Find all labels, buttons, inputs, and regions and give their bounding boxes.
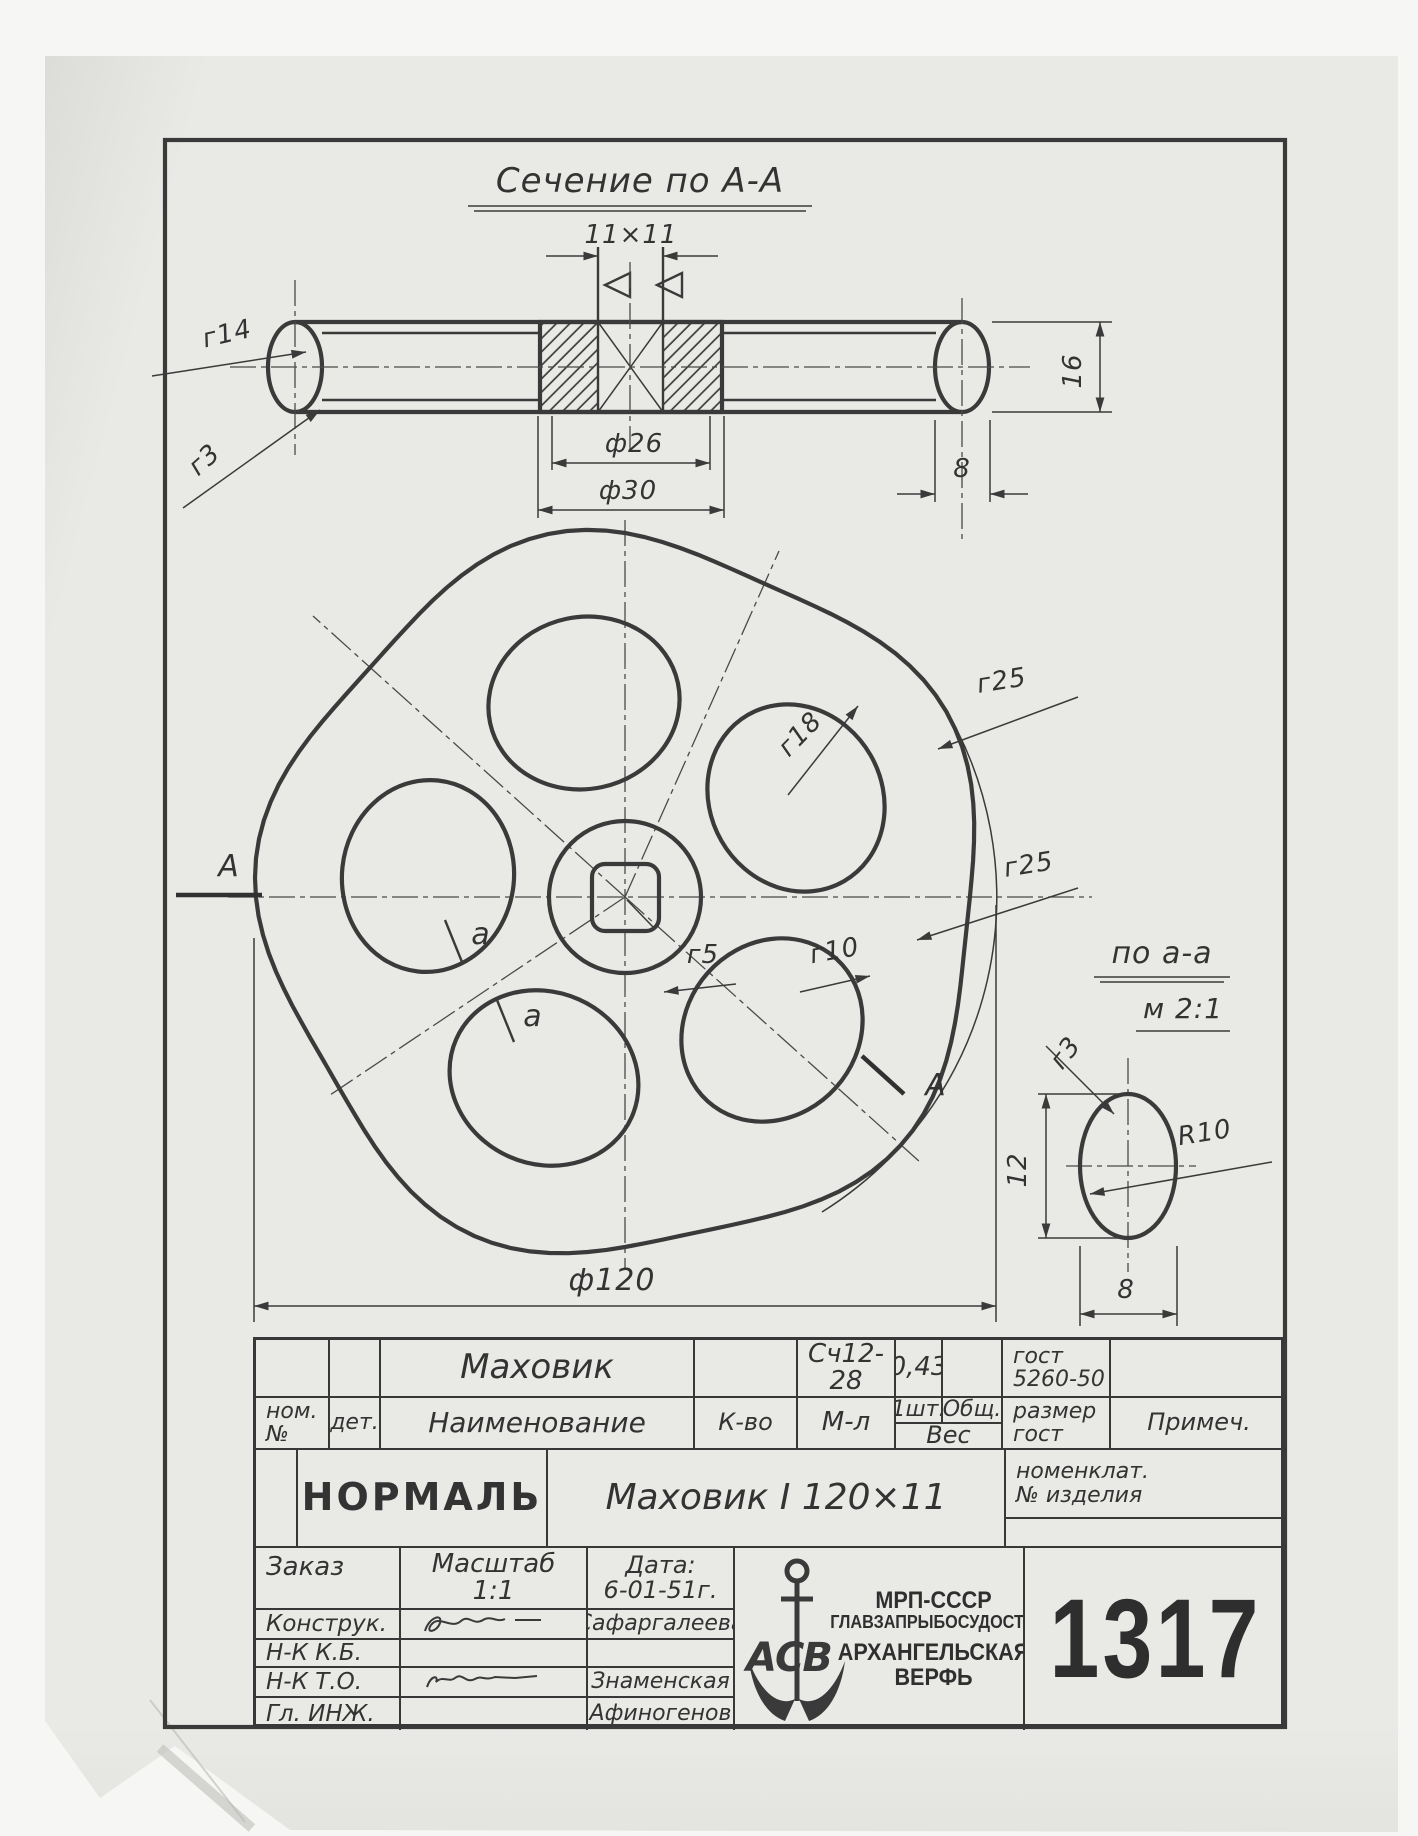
cell-empty <box>256 1450 298 1548</box>
cell-empty <box>401 1698 588 1730</box>
header-ves: Вес <box>896 1424 1003 1450</box>
dim-16: 16 <box>1058 353 1088 388</box>
cut-a-label-1: а <box>471 917 490 952</box>
date-value: 6-01-51г. <box>604 1578 718 1603</box>
logo-letters: АСВ <box>743 1635 831 1681</box>
cell-empty <box>330 1340 381 1398</box>
wheel-hole <box>644 901 900 1159</box>
title-underline <box>468 206 812 211</box>
wheel-hole <box>421 960 666 1195</box>
wheel-hole <box>472 599 696 807</box>
header-det: дет. <box>330 1398 381 1450</box>
label-r10: г10 <box>808 932 862 970</box>
cut-a-slash <box>445 920 462 962</box>
spoke-centerline <box>313 616 625 897</box>
signature-scribble <box>419 1669 569 1695</box>
cell-empty <box>401 1640 588 1668</box>
dim-11x11: 11×11 <box>585 220 678 250</box>
role-nkto: Н-К Т.О. <box>256 1668 401 1698</box>
header-ml: М-л <box>798 1398 896 1450</box>
cell-empty <box>1111 1340 1287 1398</box>
dim-8-rim: 8 <box>953 454 971 484</box>
razmer-line1: размер <box>1013 1400 1096 1423</box>
doc-number-cell: 1317 <box>1025 1548 1287 1730</box>
nomenklat-line1: номенклат. <box>1016 1460 1149 1483</box>
title-block: Маховик Сч12-28 0,43 гост5260-50 ном.№ д… <box>253 1337 1284 1727</box>
role-nkkb: Н-К К.Б. <box>256 1640 401 1668</box>
material: Сч12-28 <box>798 1340 896 1398</box>
label-r25-top: г25 <box>975 662 1029 699</box>
gost-number: гост5260-50 <box>1003 1340 1111 1398</box>
nom-line1: ном. <box>266 1400 317 1423</box>
masshtab-label: Масштаб <box>432 1551 556 1578</box>
zakaz-label: Заказ <box>256 1548 401 1610</box>
org-line4: ВЕРФЬ <box>894 1665 972 1690</box>
org-line1: МРП-СССР <box>875 1588 991 1613</box>
cut-a-slash <box>497 1000 514 1042</box>
label-r14: г14 <box>200 314 255 354</box>
name-nkto: Знаменская <box>588 1668 735 1698</box>
gost-line2: 5260-50 <box>1013 1368 1105 1391</box>
doc-number: 1317 <box>1050 1580 1262 1698</box>
razmer-line2: гост <box>1013 1423 1096 1446</box>
header-obshch: Общ. <box>943 1398 1003 1424</box>
section-mark-A-right: А <box>923 1068 947 1103</box>
cut-a-label-2: а <box>523 999 542 1034</box>
cell-empty <box>695 1340 798 1398</box>
section-mark-A-left: А <box>216 849 240 884</box>
header-nom-no: ном.№ <box>256 1398 330 1450</box>
nomenklat-value <box>1006 1519 1287 1548</box>
section-title: Сечение по А-А <box>496 161 784 201</box>
leader-line <box>152 352 306 376</box>
finish-mark-icon <box>657 273 682 297</box>
gost-line1: гост <box>1013 1345 1105 1368</box>
detail-title: по а-а <box>1111 936 1212 971</box>
stray-mark <box>627 900 654 928</box>
designation: Маховик I 120×11 <box>548 1450 1006 1548</box>
scanned-blueprint: Сечение по А-А 11×11 <box>0 0 1418 1836</box>
label-r25-right: г25 <box>1002 846 1056 883</box>
header-primech: Примеч. <box>1111 1398 1287 1450</box>
dim-dia120: ф120 <box>569 1263 656 1298</box>
org-name: МРП-СССР ГЛАВЗАПРЫБОСУДОСТР. АРХАНГЕЛЬСК… <box>859 1588 1008 1690</box>
dim-8-detail: 8 <box>1117 1275 1135 1305</box>
nomenklat-header: номенклат.№ изделия <box>1006 1450 1287 1519</box>
name-glinzh: Афиногенов <box>588 1698 735 1730</box>
nom-line2: № <box>266 1423 317 1446</box>
dim-dia26: ф26 <box>605 429 663 459</box>
wheel-outer-rim <box>255 530 974 1253</box>
nomenklat-line2: № изделия <box>1016 1484 1149 1507</box>
header-kvo: К-во <box>695 1398 798 1450</box>
dim-dia30: ф30 <box>599 476 657 506</box>
section-cut-mark <box>862 1056 904 1094</box>
wheel-hole <box>674 672 919 924</box>
spoke-centerline <box>625 551 779 897</box>
cell-empty <box>256 1340 330 1398</box>
finish-mark-icon <box>605 273 630 297</box>
normal-label: НОРМАЛЬ <box>298 1450 548 1548</box>
org-line2: ГЛАВЗАПРЫБОСУДОСТР. <box>830 1613 1025 1632</box>
shipyard-logo: АСВ <box>743 1553 851 1725</box>
part-name: Маховик <box>381 1340 695 1398</box>
date-label: Дата: <box>604 1553 718 1578</box>
leader-line <box>1090 1162 1272 1194</box>
label-R10: R10 <box>1176 1114 1234 1152</box>
masshtab-value: 1:1 <box>432 1578 556 1605</box>
label-r5: г5 <box>687 940 719 970</box>
section-view-a-a: Сечение по А-А 11×11 <box>152 161 1112 540</box>
wheel-hole <box>332 772 523 981</box>
cell-empty <box>943 1340 1003 1398</box>
header-naimenovanie: Наименование <box>381 1398 695 1450</box>
date-cell: Дата:6-01-51г. <box>588 1548 735 1610</box>
dim-12: 12 <box>1003 1152 1033 1187</box>
label-r3-rim: г3 <box>183 438 227 482</box>
role-glinzh: Гл. ИНЖ. <box>256 1698 401 1730</box>
signature-konstruk <box>401 1610 588 1640</box>
leader-line <box>938 697 1078 749</box>
signature-scribble <box>419 1611 569 1637</box>
masshtab-cell: Масштаб1:1 <box>401 1548 588 1610</box>
weight-value: 0,43 <box>896 1340 943 1398</box>
org-cell: АСВ МРП-СССР ГЛАВЗАПРЫБОСУДОСТР. АРХАНГЕ… <box>735 1548 1025 1730</box>
paper-fold <box>160 1748 252 1828</box>
name-konstruk: Сафаргалеева <box>588 1610 735 1640</box>
header-razmer-gost: размергост <box>1003 1398 1111 1450</box>
title-underline <box>1094 977 1230 982</box>
handwheel-main-view: А А а а г18 г25 г25 г5 г10 ф120 <box>176 520 1092 1322</box>
cell-empty <box>588 1640 735 1668</box>
detail-view-a-a: по а-а м 2:1 12 8 R10 г3 <box>1003 936 1272 1326</box>
org-line3: АРХАНГЕЛЬСКАЯ <box>838 1640 1025 1665</box>
header-sht: 1шт. <box>896 1398 943 1424</box>
label-r3-detail: г3 <box>1044 1031 1087 1075</box>
detail-scale: м 2:1 <box>1143 992 1223 1025</box>
role-konstruk: Конструк. <box>256 1610 401 1640</box>
signature-nkto <box>401 1668 588 1698</box>
leader-line <box>800 976 870 992</box>
